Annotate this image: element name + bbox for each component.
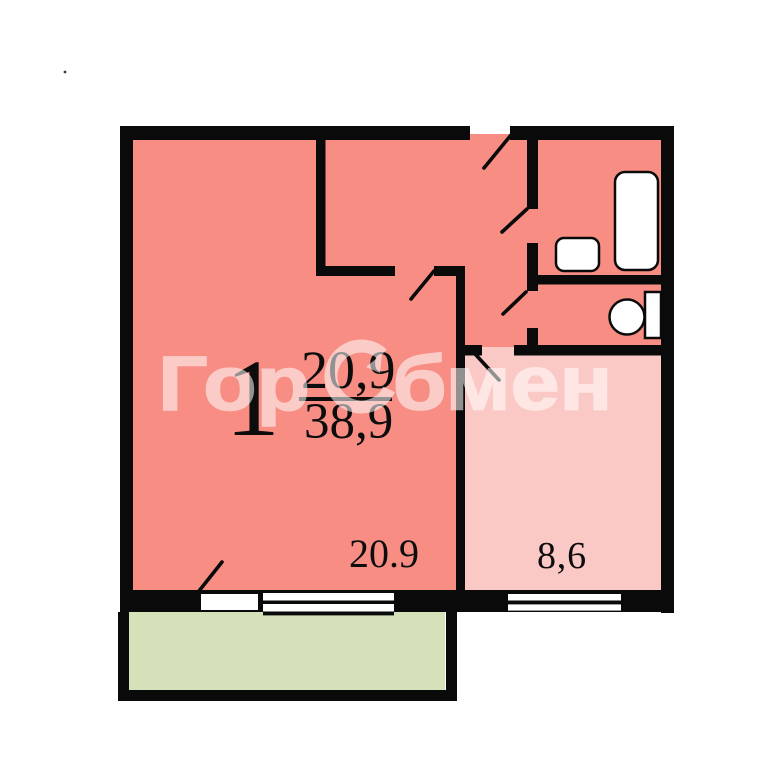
svg-text:20.9: 20.9 [349,531,419,576]
svg-text:бмен: бмен [393,341,613,427]
svg-text:Гор: Гор [158,341,310,427]
svg-text:8,6: 8,6 [537,535,587,577]
